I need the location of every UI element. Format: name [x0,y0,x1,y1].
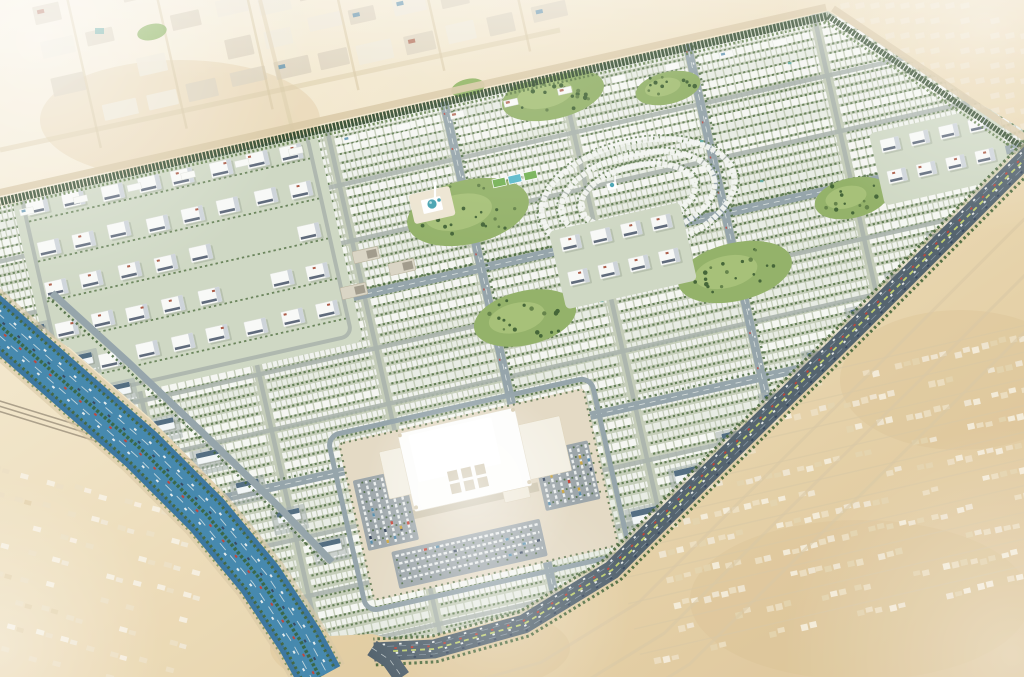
layer-haze [0,0,1024,677]
aerial-masterplan-image: Aerial masterplan rendering of a walled … [0,0,1024,677]
scene-svg: Aerial masterplan rendering of a walled … [0,0,1024,677]
haze-glow [365,383,575,593]
